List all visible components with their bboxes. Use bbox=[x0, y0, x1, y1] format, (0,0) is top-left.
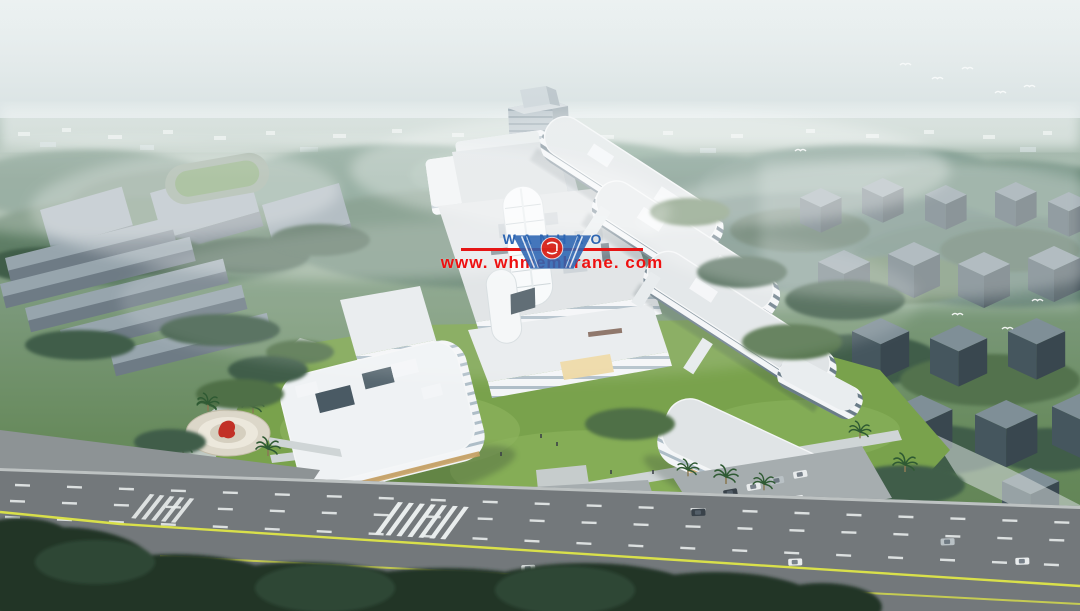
scene-svg bbox=[0, 0, 1080, 611]
aerial-hospital-rendering: WANHAO www. whmembrane. com bbox=[0, 0, 1080, 611]
atmosphere-vignette bbox=[0, 0, 1080, 180]
